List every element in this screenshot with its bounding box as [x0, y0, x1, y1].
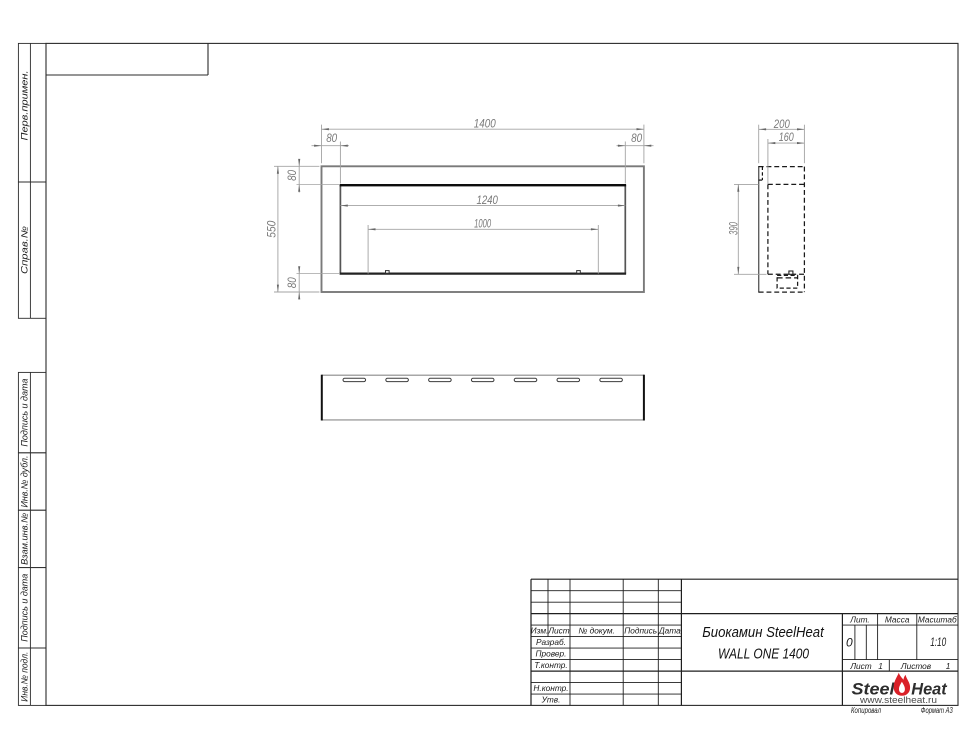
svg-text:Перв.примен.: Перв.примен. — [20, 71, 30, 141]
svg-text:Дата: Дата — [658, 626, 681, 636]
svg-text:Копировал: Копировал — [851, 705, 881, 715]
svg-text:Лит.: Лит. — [849, 614, 869, 624]
svg-text:Утв.: Утв. — [541, 695, 561, 705]
svg-text:Масштаб: Масштаб — [918, 614, 957, 624]
svg-text:200: 200 — [773, 117, 790, 131]
svg-text:80: 80 — [285, 170, 299, 181]
svg-text:Инв.№ подл.: Инв.№ подл. — [20, 652, 30, 702]
svg-text:390: 390 — [726, 222, 740, 235]
svg-text:WALL ONE 1400: WALL ONE 1400 — [718, 647, 809, 663]
svg-text:Лист: Лист — [547, 626, 569, 636]
svg-text:80: 80 — [631, 131, 642, 145]
svg-text:1000: 1000 — [474, 216, 491, 230]
svg-text:Лист: Лист — [849, 661, 871, 671]
svg-text:Подпись и дата: Подпись и дата — [20, 379, 30, 447]
svg-text:Инв.№ дубл.: Инв.№ дубл. — [20, 456, 30, 508]
svg-text:80: 80 — [285, 277, 299, 288]
svg-text:www.steelheat.ru: www.steelheat.ru — [859, 695, 937, 706]
svg-text:Подпись и дата: Подпись и дата — [20, 574, 30, 642]
svg-text:1:10: 1:10 — [930, 635, 946, 649]
svg-text:Провер.: Провер. — [536, 649, 567, 659]
svg-text:0: 0 — [846, 635, 853, 649]
svg-text:80: 80 — [326, 131, 337, 145]
svg-text:Биокамин SteelHeat: Биокамин SteelHeat — [702, 625, 824, 641]
svg-text:550: 550 — [264, 220, 278, 237]
svg-text:1: 1 — [878, 661, 883, 671]
svg-text:№ докум.: № докум. — [578, 626, 615, 636]
svg-text:Т.контр.: Т.контр. — [534, 660, 567, 670]
svg-text:Масса: Масса — [885, 614, 910, 624]
svg-text:160: 160 — [779, 130, 794, 144]
svg-text:Подпись: Подпись — [624, 626, 657, 636]
svg-text:Листов: Листов — [900, 661, 932, 671]
svg-text:Формат А3: Формат А3 — [921, 705, 953, 715]
svg-text:Взам.инв.№: Взам.инв.№ — [20, 513, 30, 565]
svg-text:Разраб.: Разраб. — [536, 637, 566, 647]
svg-text:Изм.: Изм. — [531, 626, 549, 636]
svg-text:1400: 1400 — [474, 116, 496, 130]
svg-text:Н.контр.: Н.контр. — [533, 683, 568, 693]
svg-text:Справ.№: Справ.№ — [20, 226, 30, 274]
svg-text:1240: 1240 — [476, 193, 498, 207]
svg-text:1: 1 — [946, 661, 951, 671]
